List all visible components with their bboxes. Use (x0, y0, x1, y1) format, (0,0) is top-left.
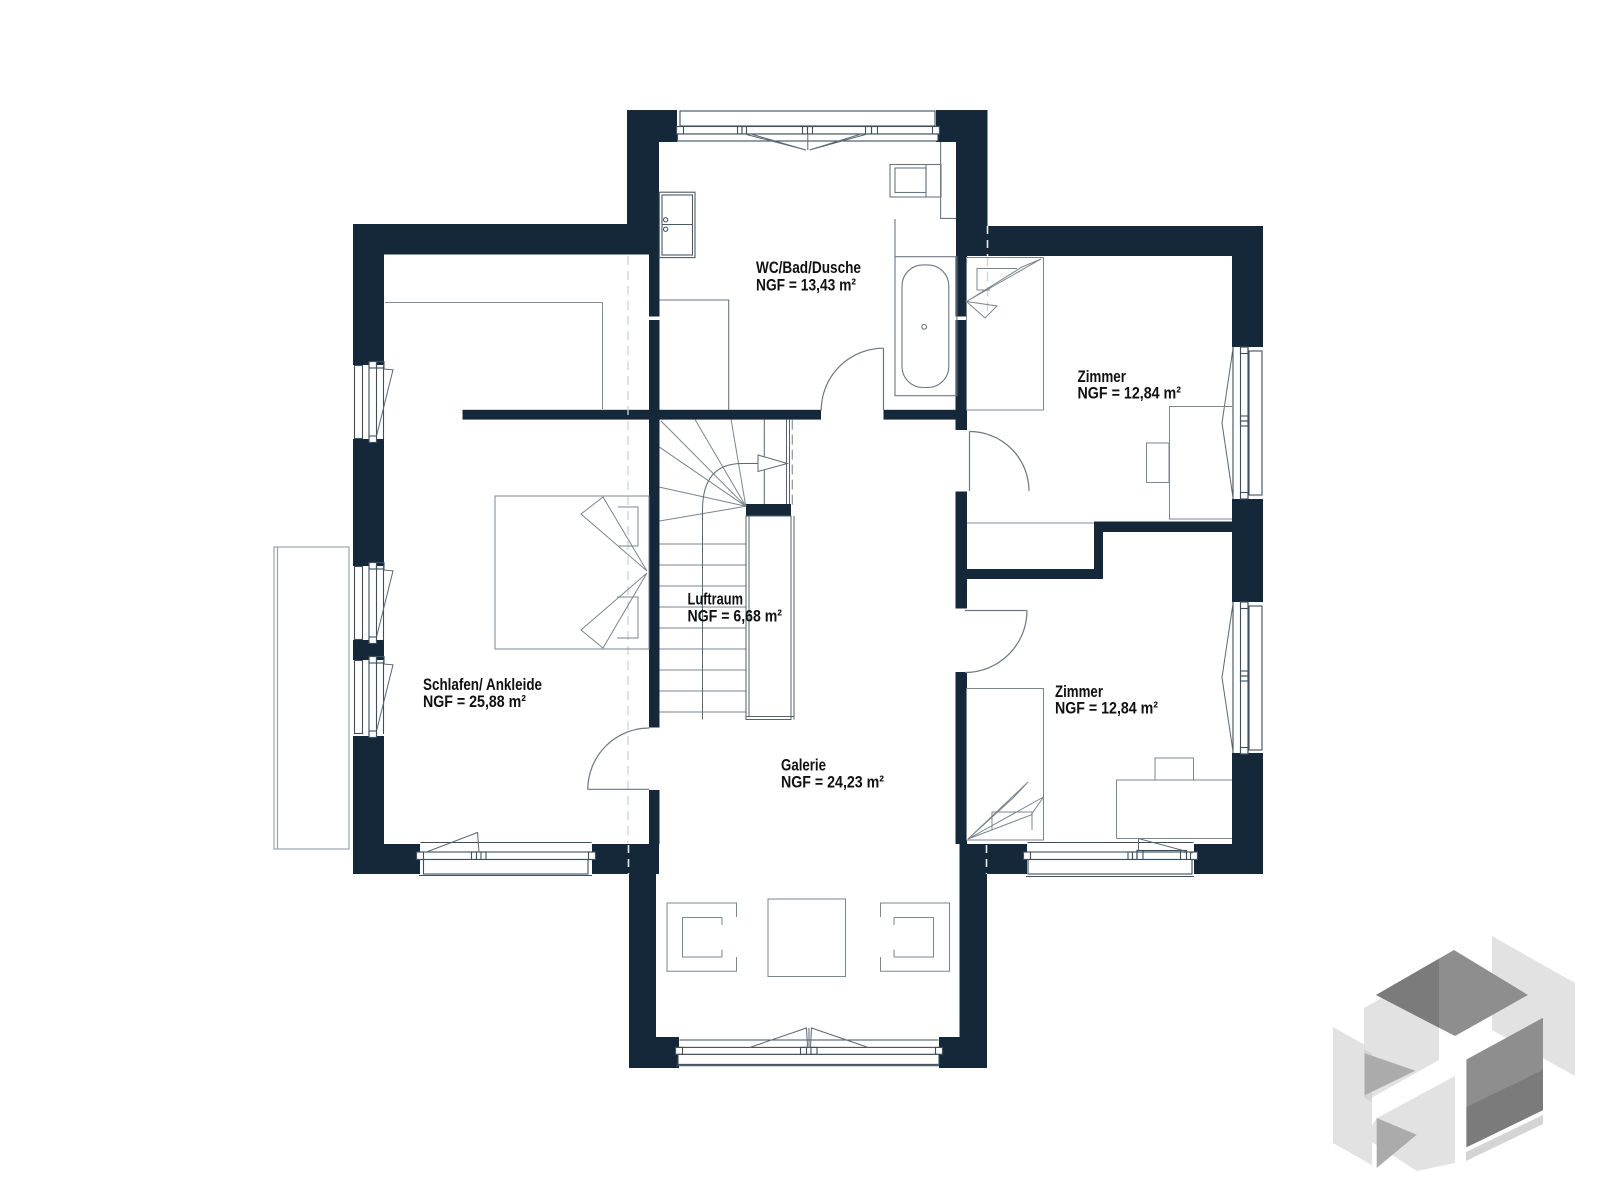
svg-text:WC/Bad/Dusche: WC/Bad/Dusche (756, 258, 861, 277)
svg-text:NGF = 13,43 m²: NGF = 13,43 m² (756, 276, 856, 295)
svg-text:NGF = 12,84 m²: NGF = 12,84 m² (1078, 384, 1182, 403)
svg-text:NGF = 24,23 m²: NGF = 24,23 m² (781, 773, 884, 792)
svg-text:NGF = 25,88 m²: NGF = 25,88 m² (423, 692, 526, 711)
svg-text:NGF = 6,68 m²: NGF = 6,68 m² (688, 607, 783, 626)
svg-text:NGF = 12,84 m²: NGF = 12,84 m² (1055, 699, 1158, 718)
